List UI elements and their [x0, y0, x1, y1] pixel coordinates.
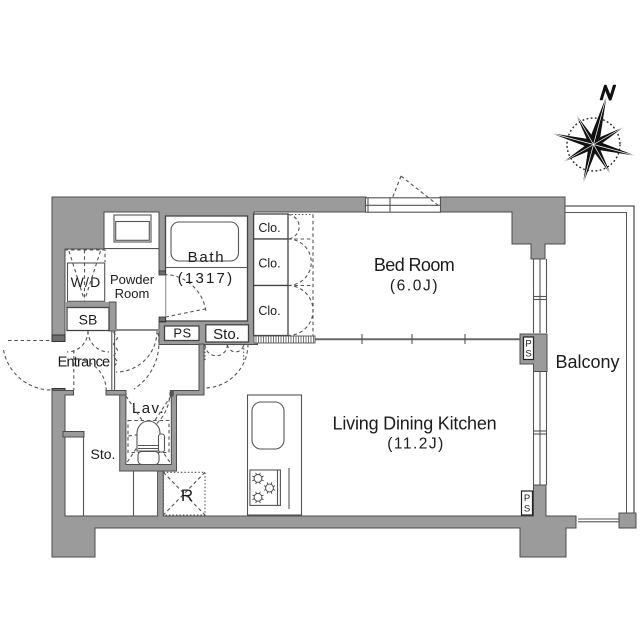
svg-text:Balcony: Balcony	[555, 352, 619, 372]
svg-text:Entrance: Entrance	[58, 355, 110, 371]
svg-text:Clo.: Clo.	[258, 304, 280, 318]
svg-text:(6.0J): (6.0J)	[390, 278, 439, 295]
svg-text:Lav.: Lav.	[132, 400, 165, 417]
svg-text:(11.2J): (11.2J)	[387, 436, 445, 453]
svg-text:Clo.: Clo.	[258, 221, 280, 235]
svg-text:S: S	[524, 504, 530, 515]
svg-text:P: P	[524, 493, 530, 504]
svg-text:(1317): (1317)	[178, 270, 235, 287]
svg-text:W/D: W/D	[71, 274, 102, 290]
svg-text:Clo.: Clo.	[258, 257, 280, 271]
svg-text:Bath: Bath	[188, 249, 226, 266]
svg-text:S: S	[525, 349, 531, 360]
svg-text:SB: SB	[79, 312, 98, 328]
svg-text:Bed Room: Bed Room	[374, 255, 454, 275]
svg-text:PS: PS	[173, 326, 191, 341]
svg-text:Room: Room	[115, 286, 150, 301]
svg-text:Sto.: Sto.	[213, 326, 240, 343]
svg-text:Living Dining Kitchen: Living Dining Kitchen	[333, 414, 497, 434]
svg-text:R: R	[181, 486, 193, 505]
svg-text:Sto.: Sto.	[91, 446, 116, 462]
svg-text:Powder: Powder	[110, 272, 155, 287]
